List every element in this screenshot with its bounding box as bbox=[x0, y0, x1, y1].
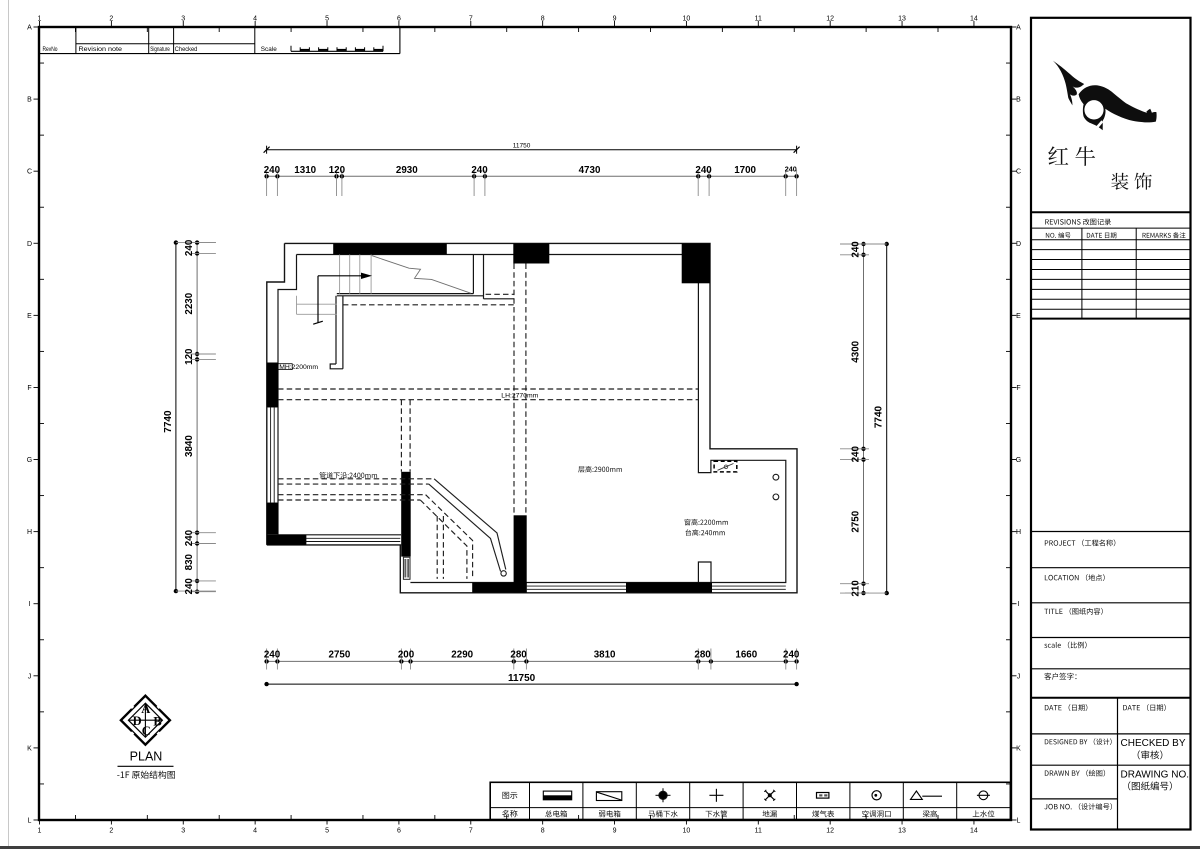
svg-text:PLAN: PLAN bbox=[130, 750, 163, 764]
svg-text:A: A bbox=[1016, 25, 1021, 32]
svg-text:7: 7 bbox=[469, 828, 473, 835]
svg-text:A: A bbox=[27, 25, 32, 32]
svg-text:4300: 4300 bbox=[850, 340, 861, 362]
svg-text:240: 240 bbox=[184, 578, 195, 595]
svg-text:J: J bbox=[28, 673, 32, 680]
svg-text:G: G bbox=[27, 457, 32, 464]
svg-text:G: G bbox=[1016, 457, 1021, 464]
svg-text:3840: 3840 bbox=[184, 435, 195, 457]
svg-text:B: B bbox=[27, 97, 32, 104]
svg-text:2290: 2290 bbox=[451, 650, 473, 661]
svg-text:11750: 11750 bbox=[513, 143, 531, 150]
svg-text:11750: 11750 bbox=[508, 673, 536, 684]
svg-text:Revision note: Revision note bbox=[79, 46, 123, 53]
svg-text:3: 3 bbox=[181, 828, 185, 835]
svg-text:K: K bbox=[27, 745, 32, 752]
svg-text:9: 9 bbox=[613, 828, 617, 835]
svg-text:120: 120 bbox=[184, 348, 195, 365]
svg-text:1310: 1310 bbox=[294, 165, 316, 176]
svg-text:280: 280 bbox=[694, 650, 711, 661]
svg-text:1: 1 bbox=[38, 828, 42, 835]
svg-text:240: 240 bbox=[184, 529, 195, 546]
svg-text:7740: 7740 bbox=[163, 410, 174, 433]
svg-text:240: 240 bbox=[471, 165, 488, 176]
svg-text:B: B bbox=[1016, 97, 1021, 104]
svg-text:L: L bbox=[28, 817, 32, 824]
svg-text:240: 240 bbox=[850, 241, 861, 258]
svg-text:F: F bbox=[1016, 385, 1020, 392]
svg-text:MH:2200mm: MH:2200mm bbox=[279, 364, 318, 371]
svg-text:A: A bbox=[141, 702, 150, 716]
svg-text:8: 8 bbox=[541, 828, 545, 835]
svg-text:E: E bbox=[27, 313, 32, 320]
svg-text:J: J bbox=[1017, 673, 1021, 680]
svg-text:2: 2 bbox=[109, 828, 113, 835]
svg-text:210: 210 bbox=[850, 580, 861, 597]
svg-text:830: 830 bbox=[184, 553, 195, 570]
svg-text:D: D bbox=[133, 714, 142, 728]
svg-text:240: 240 bbox=[850, 445, 861, 462]
svg-text:1700: 1700 bbox=[734, 165, 756, 176]
svg-text:280: 280 bbox=[510, 650, 527, 661]
svg-text:DRAWING NO.: DRAWING NO. bbox=[1121, 770, 1190, 781]
svg-text:13: 13 bbox=[898, 828, 906, 835]
svg-text:240: 240 bbox=[184, 239, 195, 256]
svg-text:14: 14 bbox=[970, 828, 978, 835]
svg-text:I: I bbox=[29, 601, 31, 608]
svg-text:240: 240 bbox=[783, 650, 800, 661]
svg-text:Signature: Signature bbox=[150, 46, 170, 53]
svg-text:240: 240 bbox=[695, 165, 712, 176]
svg-text:2750: 2750 bbox=[850, 510, 861, 532]
svg-text:F: F bbox=[27, 385, 31, 392]
svg-text:240: 240 bbox=[785, 165, 797, 174]
svg-text:4730: 4730 bbox=[579, 165, 601, 176]
svg-text:11: 11 bbox=[755, 828, 762, 835]
svg-text:4: 4 bbox=[253, 828, 257, 835]
svg-text:3810: 3810 bbox=[594, 650, 616, 661]
svg-text:D: D bbox=[1016, 241, 1021, 248]
svg-text:L: L bbox=[1017, 817, 1021, 824]
svg-text:Scale: Scale bbox=[261, 46, 277, 53]
svg-text:K: K bbox=[1016, 745, 1021, 752]
svg-text:C: C bbox=[142, 724, 151, 738]
svg-text:C: C bbox=[1016, 169, 1021, 176]
svg-text:6: 6 bbox=[397, 828, 401, 835]
svg-text:LH:2770mm: LH:2770mm bbox=[501, 392, 538, 399]
svg-text:200: 200 bbox=[398, 650, 415, 661]
svg-text:H: H bbox=[1016, 529, 1021, 536]
svg-text:5: 5 bbox=[325, 828, 329, 835]
svg-text:2930: 2930 bbox=[396, 165, 418, 176]
svg-text:B: B bbox=[153, 715, 161, 729]
svg-text:12: 12 bbox=[826, 828, 834, 835]
svg-text:2750: 2750 bbox=[329, 650, 351, 661]
svg-text:H: H bbox=[27, 529, 32, 536]
svg-text:Checked: Checked bbox=[175, 46, 198, 53]
svg-text:CHECKED BY: CHECKED BY bbox=[1121, 738, 1186, 749]
svg-text:10: 10 bbox=[683, 828, 691, 835]
svg-text:240: 240 bbox=[264, 165, 281, 176]
svg-text:2230: 2230 bbox=[184, 292, 195, 314]
svg-text:D: D bbox=[27, 241, 32, 248]
svg-text:120: 120 bbox=[329, 165, 346, 176]
svg-text:240: 240 bbox=[264, 650, 281, 661]
svg-text:1660: 1660 bbox=[735, 650, 757, 661]
svg-text:7740: 7740 bbox=[874, 405, 885, 428]
svg-text:C: C bbox=[27, 169, 32, 176]
svg-text:I: I bbox=[1018, 601, 1020, 608]
svg-text:E: E bbox=[1016, 313, 1021, 320]
svg-text:RevNo: RevNo bbox=[43, 46, 58, 53]
